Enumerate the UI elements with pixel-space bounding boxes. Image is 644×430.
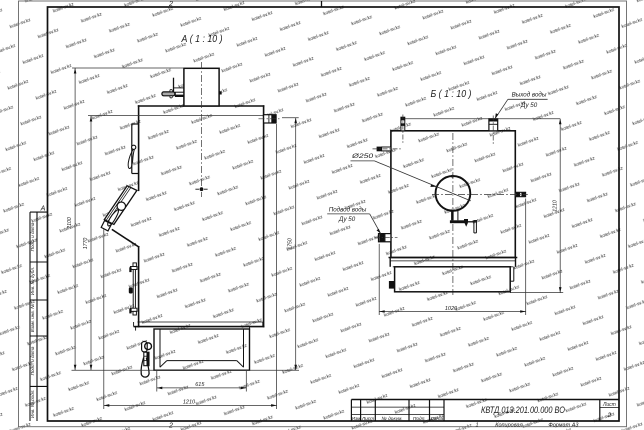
svg-text:1210: 1210 [553, 200, 559, 212]
svg-text:2100: 2100 [67, 217, 73, 230]
svg-text:Подп. и дата: Подп. и дата [30, 346, 35, 375]
svg-text:Изм: Изм [352, 416, 362, 422]
svg-text:№ докум.: № докум. [382, 416, 403, 422]
svg-text:1770: 1770 [83, 238, 89, 250]
svg-text:Лист: Лист [361, 416, 374, 422]
svg-text:615: 615 [195, 382, 205, 388]
svg-text:Копировал: Копировал [495, 423, 522, 429]
svg-text:Ду 50: Ду 50 [338, 216, 356, 223]
svg-text:2: 2 [168, 1, 173, 8]
svg-text:Подп. и дата: Подп. и дата [30, 222, 35, 251]
svg-text:Ø250: Ø250 [351, 153, 374, 160]
svg-text:Лист: Лист [602, 402, 616, 408]
svg-text:1: 1 [475, 423, 478, 429]
svg-text:Ду 50: Ду 50 [520, 102, 538, 109]
svg-text:Подп.: Подп. [413, 416, 426, 422]
svg-text:Формат А3: Формат А3 [548, 423, 579, 429]
svg-text:Инв. № подл.: Инв. № подл. [30, 389, 35, 418]
svg-text:1020: 1020 [445, 306, 458, 312]
svg-text:Инв. № дубл.: Инв. № дубл. [30, 267, 35, 295]
svg-text:Выход воды: Выход воды [512, 92, 547, 99]
svg-text:2: 2 [607, 412, 612, 419]
svg-text:Взам. инв. №: Взам. инв. № [30, 304, 35, 332]
svg-text:Дата: Дата [429, 416, 443, 422]
svg-text:1210: 1210 [183, 399, 196, 405]
svg-text:2: 2 [168, 422, 173, 429]
svg-text:Подвод воды: Подвод воды [329, 207, 367, 214]
svg-text:Б ( 1 : 10 ): Б ( 1 : 10 ) [431, 88, 472, 100]
svg-text:А: А [40, 206, 46, 213]
svg-text:КВТД.013.201.00.000 ВО: КВТД.013.201.00.000 ВО [481, 405, 565, 415]
svg-text:А ( 1 : 10 ): А ( 1 : 10 ) [181, 33, 223, 45]
svg-text:1750: 1750 [288, 238, 294, 250]
